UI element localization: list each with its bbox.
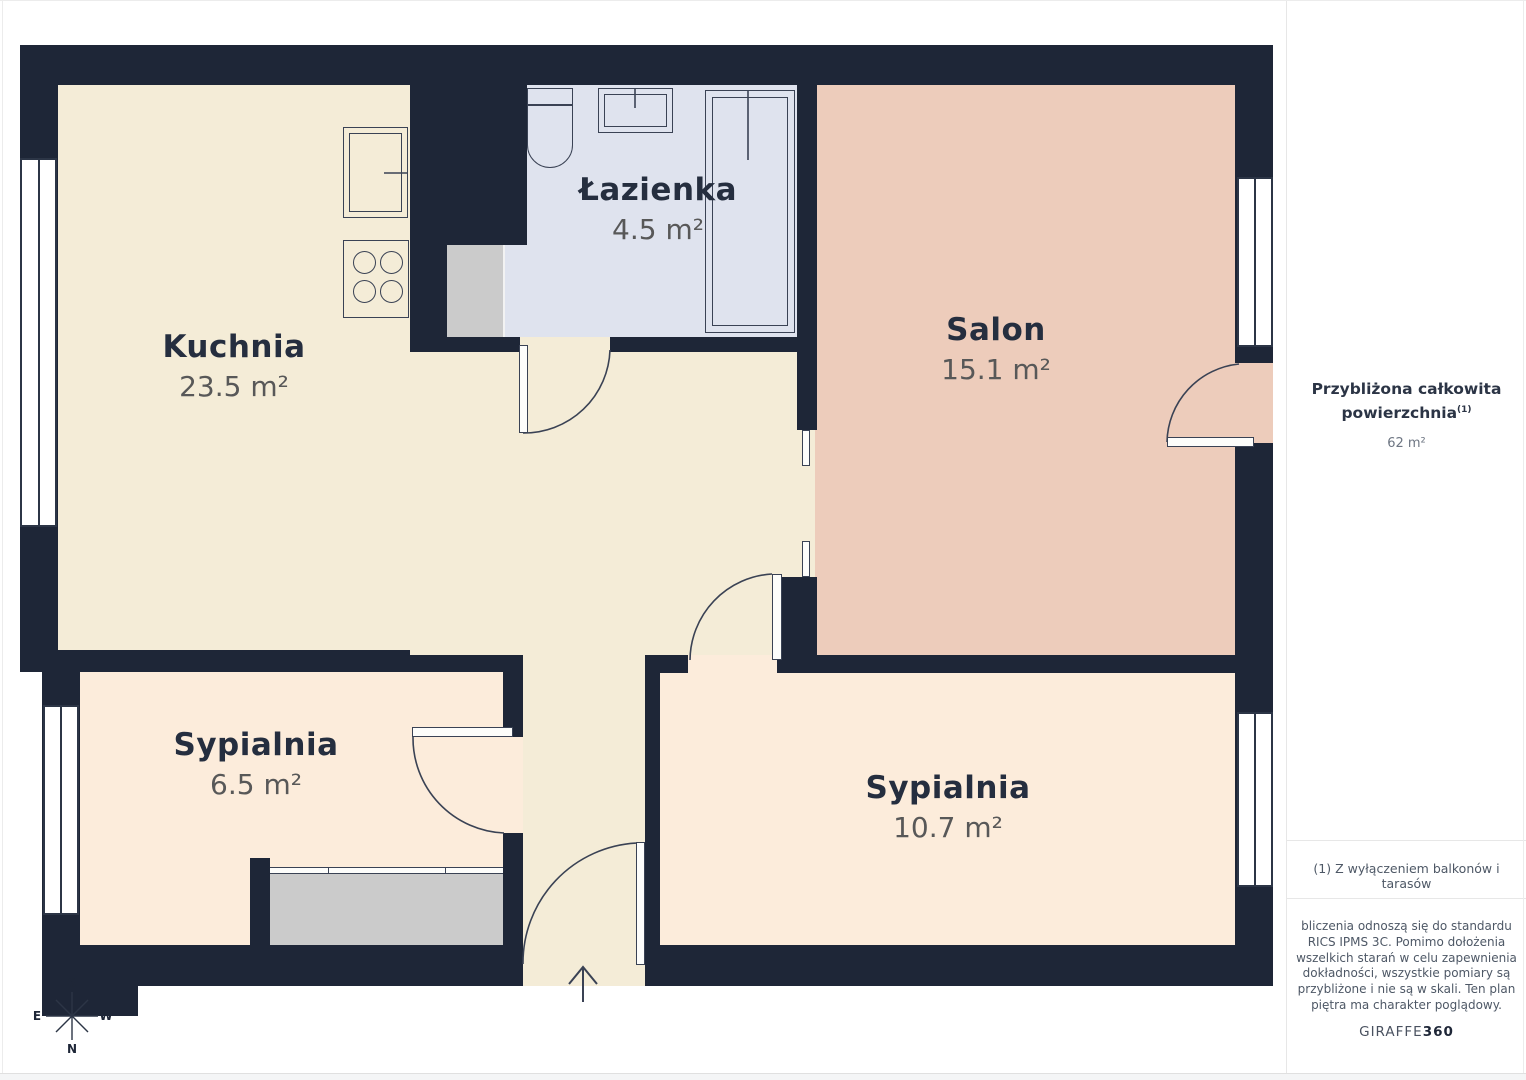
bathroom-door-arc (523, 350, 610, 433)
compass-south-label: S (68, 976, 77, 990)
sidebar-divider-left (1286, 0, 1287, 1080)
room-name: Sypialnia (865, 770, 1030, 806)
page-left-border (2, 0, 3, 1080)
total-area-line1: Przybliżona całkowita (1312, 380, 1502, 398)
room-area: 10.7 m² (865, 811, 1030, 844)
total-area-line2: powierzchnia (1341, 404, 1457, 422)
plan-linework (0, 0, 1526, 1080)
brand-suffix: 360 (1423, 1024, 1454, 1040)
sidebar-divider-1 (1287, 840, 1526, 841)
total-area-value: 62 m² (1287, 433, 1526, 454)
disclaimer-line: piętra ma charakter poglądowy. (1287, 998, 1526, 1014)
bedroom-right-label: Sypialnia 10.7 m² (865, 770, 1030, 844)
floorplan-page: { "plan": { "rooms": [ {"name": "Kuchnia… (0, 0, 1526, 1080)
footnote-text: (1) Z wyłączeniem balkonów i tarasów (1287, 861, 1526, 891)
room-area: 6.5 m² (173, 768, 338, 801)
disclaimer-line: RICS IPMS 3C. Pomimo dołożenia (1287, 935, 1526, 951)
kitchen-label: Kuchnia 23.5 m² (162, 329, 305, 403)
total-area-superscript: (1) (1457, 405, 1472, 415)
compass-star-icon (46, 992, 98, 1040)
brand-prefix: GIRAFFE (1359, 1024, 1423, 1040)
page-right-border (1523, 0, 1524, 1080)
bedroom-left-door-arc (413, 737, 504, 833)
room-name: Łazienka (579, 172, 737, 208)
giraffe360-logo: GIRAFFE360 (1287, 1024, 1526, 1040)
salon-label: Salon 15.1 m² (941, 312, 1051, 386)
compass-north-label: N (67, 1042, 77, 1056)
bathroom-label: Łazienka 4.5 m² (579, 172, 737, 246)
disclaimer-text: bliczenia odnoszą się do standardu RICS … (1287, 919, 1526, 1014)
room-name: Salon (941, 312, 1051, 348)
disclaimer-line: przybliżone i nie są w skali. Ten plan (1287, 982, 1526, 998)
disclaimer-line: dokładności, wszystkie pomiary są (1287, 966, 1526, 982)
disclaimer-line: wszelkich starań w celu zapewnienia (1287, 951, 1526, 967)
bedroom-right-door-arc (690, 574, 772, 660)
bedroom-left-label: Sypialnia 6.5 m² (173, 727, 338, 801)
page-top-border (0, 0, 1526, 1)
compass-east-label: E (33, 1009, 41, 1023)
room-name: Sypialnia (173, 727, 338, 763)
entrance-door-arc (523, 843, 637, 964)
compass-west-label: W (99, 1009, 112, 1023)
total-area-title: Przybliżona całkowita powierzchnia(1) 62… (1287, 379, 1526, 454)
balcony-door-arc (1167, 364, 1239, 442)
room-area: 15.1 m² (941, 353, 1051, 386)
sidebar-divider-2 (1287, 898, 1526, 899)
entrance-arrow-icon (569, 967, 597, 1002)
disclaimer-line: bliczenia odnoszą się do standardu (1287, 919, 1526, 935)
room-name: Kuchnia (162, 329, 305, 365)
page-bottom-strip (0, 1073, 1526, 1080)
room-area: 23.5 m² (162, 370, 305, 403)
room-area: 4.5 m² (579, 213, 737, 246)
